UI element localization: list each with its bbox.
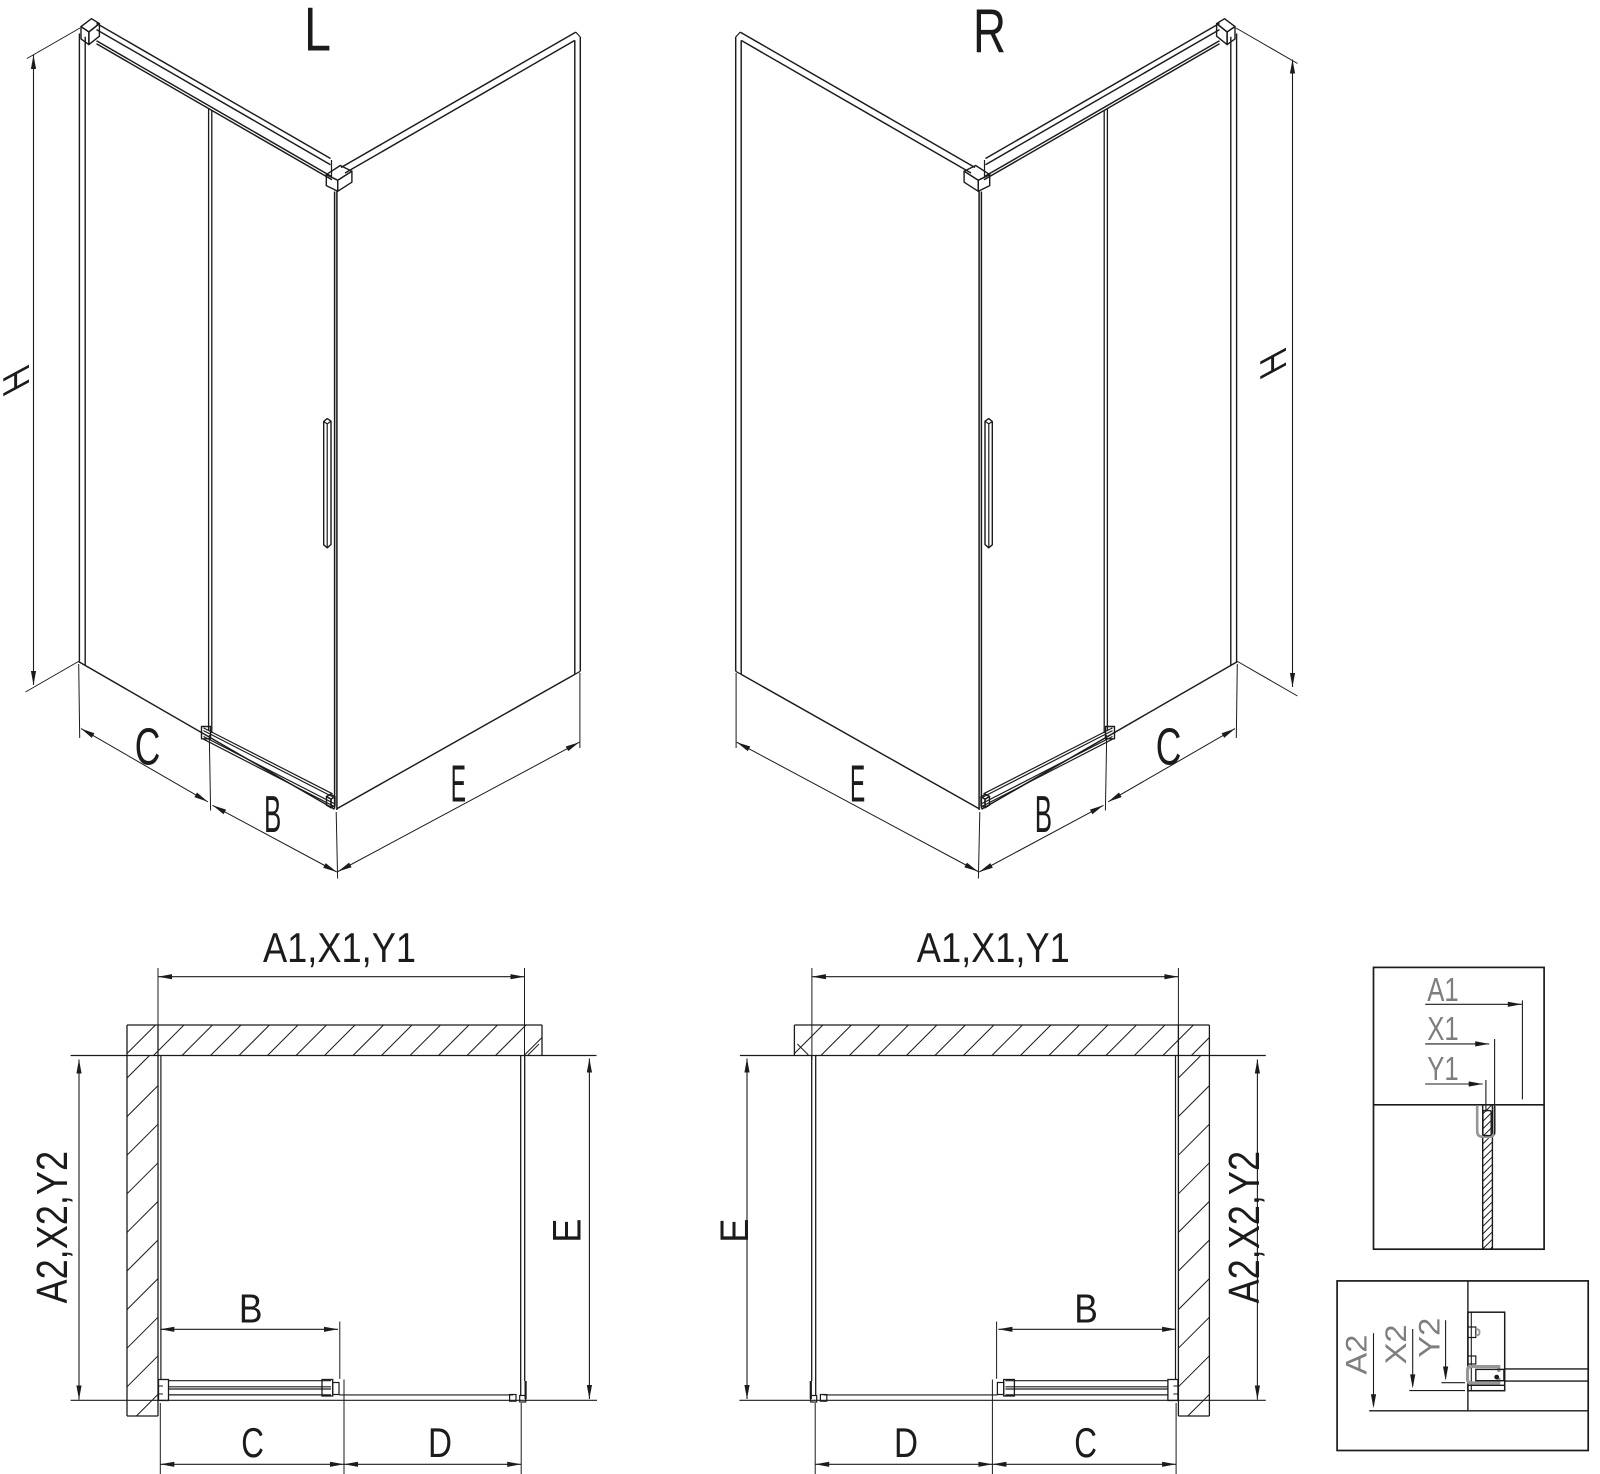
svg-text:C: C: [135, 719, 161, 777]
svg-text:C: C: [1156, 719, 1182, 777]
svg-text:R: R: [973, 0, 1006, 67]
svg-text:E: E: [545, 1219, 589, 1243]
svg-text:L: L: [304, 0, 331, 64]
svg-text:Y1: Y1: [1427, 1050, 1458, 1087]
svg-text:C: C: [241, 1419, 264, 1466]
svg-text:B: B: [1074, 1285, 1098, 1331]
svg-text:Y2: Y2: [1414, 1318, 1447, 1358]
svg-text:X1: X1: [1427, 1010, 1458, 1047]
svg-text:D: D: [894, 1419, 918, 1466]
svg-text:A1: A1: [1427, 971, 1458, 1008]
svg-text:B: B: [1035, 786, 1052, 844]
svg-text:C: C: [1074, 1419, 1097, 1466]
svg-text:A1,X1,Y1: A1,X1,Y1: [917, 924, 1070, 971]
svg-text:X2: X2: [1380, 1324, 1413, 1364]
svg-text:D: D: [428, 1419, 452, 1466]
svg-text:A2,X2,Y2: A2,X2,Y2: [28, 1151, 77, 1304]
svg-text:A2: A2: [1340, 1335, 1373, 1375]
svg-text:B: B: [264, 786, 281, 844]
svg-text:E: E: [713, 1219, 757, 1243]
svg-text:B: B: [239, 1285, 263, 1331]
svg-text:A1,X1,Y1: A1,X1,Y1: [263, 924, 416, 971]
svg-text:E: E: [850, 756, 865, 814]
svg-text:A2,X2,Y2: A2,X2,Y2: [1220, 1151, 1269, 1304]
svg-text:E: E: [451, 756, 466, 814]
